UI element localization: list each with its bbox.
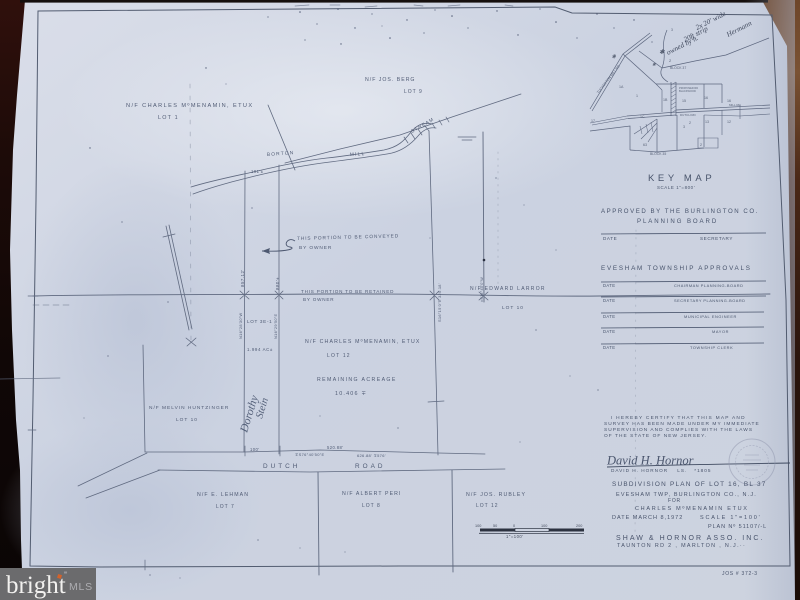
- svg-text:10.406 ∓: 10.406 ∓: [335, 391, 367, 397]
- svg-text:I HEREBY CERTIFY THAT THIS: I HEREBY CERTIFY THAT THIS MAP AND: [611, 415, 746, 421]
- svg-text:100: 100: [541, 524, 547, 528]
- svg-text:DATE: DATE: [603, 329, 615, 334]
- svg-text:SECRETARY: SECRETARY: [700, 236, 733, 241]
- svg-text:DATE MARCH 8,1972: DATE MARCH 8,1972: [612, 515, 683, 521]
- svg-text:KEY MAP: KEY MAP: [648, 173, 715, 184]
- svg-text:DATE: DATE: [603, 283, 615, 288]
- svg-text:MAYOR: MAYOR: [712, 329, 729, 334]
- svg-text:✱: ✱: [659, 49, 665, 56]
- svg-text:520.88': 520.88': [327, 445, 343, 450]
- svg-text:bright: bright: [6, 572, 66, 599]
- svg-text:PLAN Nº 51107/-L: PLAN Nº 51107/-L: [708, 523, 767, 530]
- svg-text:SUPERVISION AND COMPLIES WI: SUPERVISION AND COMPLIES WITH THE LAWS: [604, 427, 753, 433]
- svg-text:101'±: 101'±: [251, 169, 264, 174]
- svg-text:SHAW & HORNOR ASSO. INC.: SHAW & HORNOR ASSO. INC.: [616, 535, 765, 542]
- svg-text:DAVID H. HORNOR LS. *180: DAVID H. HORNOR LS. *1805: [611, 468, 712, 473]
- svg-text:TAUNTON RD 2 , MARLTON , N.J.: TAUNTON RD 2 , MARLTON , N.J.··: [617, 543, 746, 549]
- svg-text:N/F E. LEHMAN: N/F E. LEHMAN: [197, 492, 249, 498]
- svg-text:LOT 7: LOT 7: [216, 504, 235, 510]
- svg-text:N/F ALBERT PERI: N/F ALBERT PERI: [342, 491, 402, 497]
- svg-text:REMAINING ACREAGE: REMAINING ACREAGE: [317, 377, 397, 383]
- svg-text:3: 3: [683, 125, 685, 129]
- svg-text:N/F CHARLES MºMENAMIN, ETUX: N/F CHARLES MºMENAMIN, ETUX: [305, 339, 421, 345]
- svg-text:S16°15'0"E 320.18': S16°15'0"E 320.18': [437, 283, 442, 322]
- svg-text:MLS: MLS: [69, 581, 93, 593]
- svg-text:OF THE STATE OF NEW JERSEY: OF THE STATE OF NEW JERSEY.: [604, 433, 707, 439]
- svg-text:12: 12: [727, 120, 731, 124]
- svg-text:LOT 10: LOT 10: [176, 417, 198, 423]
- svg-text:857.12': 857.12': [240, 269, 245, 287]
- svg-text:ROAD: ROAD: [355, 463, 385, 470]
- svg-text:LOT 9: LOT 9: [404, 89, 423, 95]
- svg-text:EVESHAM TOWNSHIP APPROVALS: EVESHAM TOWNSHIP APPROVALS: [601, 265, 752, 272]
- svg-text:N/F CHARLES MºMENAMIN, ETUX: N/F CHARLES MºMENAMIN, ETUX: [126, 102, 254, 109]
- svg-text:N/F MELVIN HUNTZINGER: N/F MELVIN HUNTZINGER: [149, 405, 229, 411]
- svg-text:DATE: DATE: [603, 314, 615, 319]
- svg-text:TOWNSHIP CLERK: TOWNSHIP CLERK: [690, 345, 733, 350]
- svg-text:N16°29'50"E: N16°29'50"E: [273, 314, 278, 339]
- svg-text:17: 17: [591, 119, 595, 123]
- svg-text:SECRETARY PLANNING-BOARD: SECRETARY PLANNING-BOARD: [674, 298, 745, 303]
- svg-text:MILL RD: MILL RD: [729, 103, 742, 107]
- svg-text:DATE: DATE: [603, 345, 615, 350]
- svg-text:50: 50: [493, 524, 497, 528]
- svg-text:N/F JOS. RUBLEY: N/F JOS. RUBLEY: [466, 492, 526, 498]
- svg-text:THIS PORTION TO BE RETAINE: THIS PORTION TO BE RETAINED: [301, 289, 394, 294]
- svg-text:DATE: DATE: [603, 236, 617, 241]
- svg-text:SCALE 1"=800': SCALE 1"=800': [657, 185, 695, 190]
- svg-text:CHARLES MºMENAMIN ETUX: CHARLES MºMENAMIN ETUX: [635, 505, 749, 512]
- svg-text:APPROVED BY THE BURLINGTON CO.: APPROVED BY THE BURLINGTON CO.: [601, 208, 759, 215]
- svg-text:LOT 3E-1: LOT 3E-1: [247, 319, 272, 324]
- svg-text:BLACKWOOD: BLACKWOOD: [679, 89, 696, 93]
- svg-text:1B: 1B: [663, 98, 668, 102]
- svg-text:200: 200: [576, 524, 582, 528]
- svg-text:100': 100': [250, 447, 259, 452]
- svg-text:DUTCH RD: DUTCH RD: [680, 113, 696, 117]
- svg-text:1: 1: [636, 94, 638, 98]
- svg-text:DATE: DATE: [603, 298, 615, 303]
- svg-text:LOT 12: LOT 12: [476, 503, 499, 509]
- svg-text:∓S76°40'50"E: ∓S76°40'50"E: [295, 452, 324, 457]
- svg-text:16: 16: [704, 96, 708, 100]
- svg-text:FOR: FOR: [668, 498, 681, 504]
- svg-text:626.88' ∓576': 626.88' ∓576': [357, 453, 386, 458]
- svg-text:BY OWNER: BY OWNER: [303, 297, 334, 302]
- svg-text:MILL: MILL: [350, 151, 366, 158]
- svg-text:PLANNING BOARD: PLANNING BOARD: [637, 218, 718, 225]
- svg-text:0: 0: [513, 524, 515, 528]
- svg-text:MUNICIPAL ENGINEER: MUNICIPAL ENGINEER: [684, 314, 737, 319]
- svg-text:LOT 8: LOT 8: [362, 503, 381, 509]
- svg-text:1A: 1A: [619, 85, 624, 89]
- svg-text:BLOCK 37: BLOCK 37: [670, 66, 686, 70]
- svg-text:1C: 1C: [640, 115, 645, 119]
- svg-text:LOT 12: LOT 12: [327, 353, 351, 359]
- svg-text:100: 100: [475, 524, 481, 528]
- svg-text:CHAIRMAN PLANNING-BOARD: CHAIRMAN PLANNING-BOARD: [674, 283, 744, 288]
- svg-text:SUBDIVISION PLAN OF LOT 16: SUBDIVISION PLAN OF LOT 16, BL 37: [612, 481, 767, 488]
- svg-text:63: 63: [643, 143, 647, 147]
- svg-text:3: 3: [671, 28, 673, 32]
- svg-text:SURVEY HAS BEEN MADE UNDER: SURVEY HAS BEEN MADE UNDER MY IMMEDIATE: [604, 421, 760, 427]
- svg-text:LOT 1: LOT 1: [158, 115, 179, 121]
- svg-text:SCALE 1"=100': SCALE 1"=100': [700, 515, 761, 521]
- svg-text:BY OWNER: BY OWNER: [299, 245, 332, 251]
- svg-text:2: 2: [689, 121, 691, 125]
- svg-text:1"=100': 1"=100': [506, 534, 524, 539]
- svg-text:15: 15: [682, 99, 686, 103]
- svg-text:880'±: 880'±: [275, 277, 280, 290]
- svg-text:13: 13: [705, 120, 709, 124]
- svg-text:2: 2: [700, 143, 702, 147]
- svg-text:EVESHAM TWP, BURLINGTON CO., N: EVESHAM TWP, BURLINGTON CO., N.J.: [616, 492, 757, 498]
- svg-text:DUTCH: DUTCH: [263, 463, 300, 470]
- svg-text:LOT 10: LOT 10: [502, 305, 524, 311]
- svg-text:JOS # 372-3: JOS # 372-3: [722, 571, 758, 577]
- svg-text:N/F JOS. BERG: N/F JOS. BERG: [365, 77, 415, 83]
- svg-text:BLOCK 35: BLOCK 35: [650, 152, 666, 156]
- svg-text:N16°28'30"W: N16°28'30"W: [238, 313, 243, 339]
- svg-text:±S16°45'0"W: ±S16°45'0"W: [480, 277, 484, 302]
- svg-text:1.994 AC±: 1.994 AC±: [247, 347, 273, 352]
